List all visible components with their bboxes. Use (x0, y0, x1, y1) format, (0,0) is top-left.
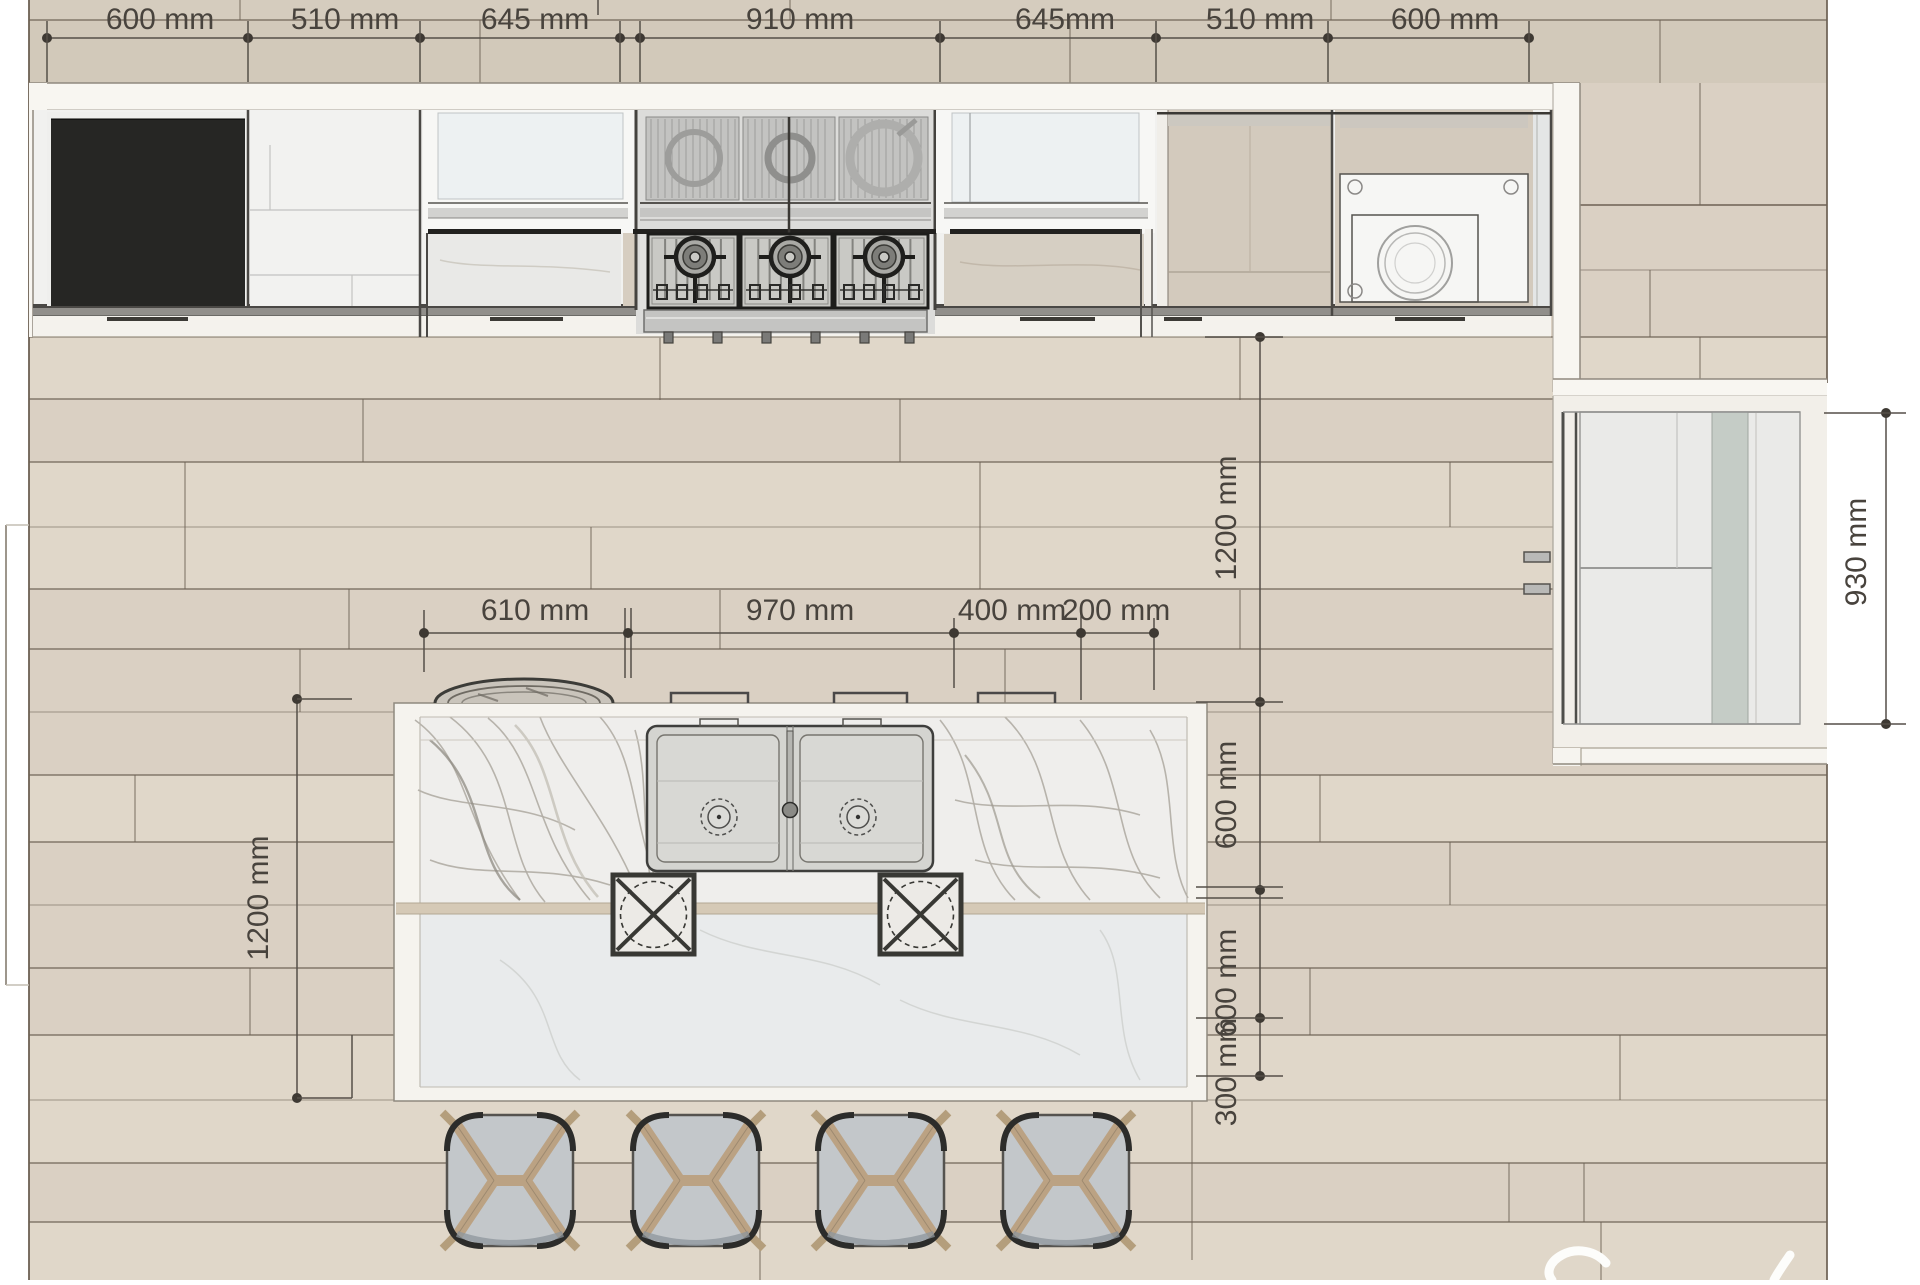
svg-text:200 mm: 200 mm (1062, 594, 1170, 627)
svg-text:510 mm: 510 mm (1206, 3, 1314, 36)
svg-text:400 mm: 400 mm (958, 594, 1066, 627)
svg-text:910 mm: 910 mm (746, 3, 854, 36)
svg-text:600 mm: 600 mm (1391, 3, 1499, 36)
svg-text:970 mm: 970 mm (746, 594, 854, 627)
svg-text:645mm: 645mm (1015, 3, 1115, 36)
svg-text:510 mm: 510 mm (291, 3, 399, 36)
svg-text:645 mm: 645 mm (481, 3, 589, 36)
svg-text:1200 mm: 1200 mm (1210, 455, 1243, 580)
svg-text:300 mm: 300 mm (1210, 1018, 1243, 1126)
svg-text:600 mm: 600 mm (106, 3, 214, 36)
svg-text:1200 mm: 1200 mm (242, 835, 275, 960)
svg-text:600 mm: 600 mm (1210, 741, 1243, 849)
svg-text:610 mm: 610 mm (481, 594, 589, 627)
svg-text:930 mm: 930 mm (1840, 498, 1873, 606)
